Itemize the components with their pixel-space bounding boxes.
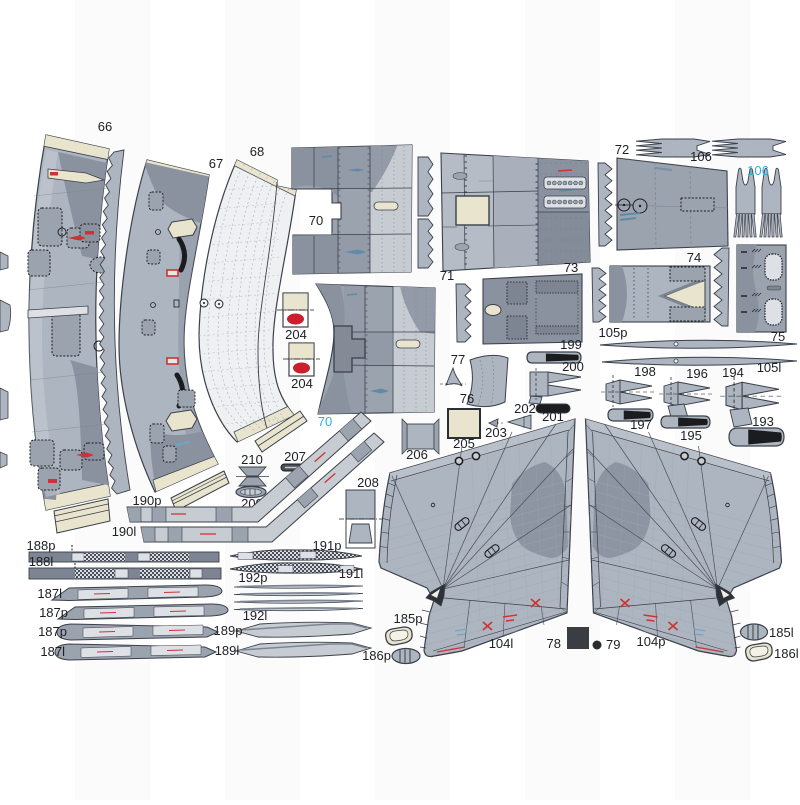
svg-text:191l: 191l — [339, 566, 364, 581]
svg-text:187l: 187l — [40, 644, 65, 659]
svg-text:77: 77 — [451, 352, 465, 367]
svg-text:199: 199 — [560, 337, 582, 352]
svg-text:201: 201 — [542, 409, 564, 424]
svg-text:67: 67 — [209, 156, 223, 171]
svg-text:71: 71 — [440, 268, 454, 283]
svg-text:204: 204 — [285, 327, 307, 342]
svg-text:196: 196 — [686, 366, 708, 381]
svg-text:188p: 188p — [27, 538, 56, 553]
svg-text:193: 193 — [752, 414, 774, 429]
svg-text:105l: 105l — [757, 360, 782, 375]
svg-text:72: 72 — [615, 142, 629, 157]
svg-text:194: 194 — [722, 365, 744, 380]
svg-text:78: 78 — [547, 636, 561, 651]
svg-text:74: 74 — [687, 250, 701, 265]
svg-text:190p: 190p — [133, 493, 162, 508]
svg-text:187p: 187p — [39, 605, 68, 620]
svg-text:202: 202 — [514, 401, 536, 416]
svg-text:207: 207 — [284, 449, 306, 464]
svg-text:210: 210 — [241, 452, 263, 467]
svg-text:206: 206 — [406, 447, 428, 462]
svg-text:189p: 189p — [214, 623, 243, 638]
svg-text:208: 208 — [357, 475, 379, 490]
svg-text:79: 79 — [606, 637, 620, 652]
svg-text:192l: 192l — [243, 608, 268, 623]
svg-text:204: 204 — [291, 376, 313, 391]
svg-text:189l: 189l — [215, 643, 240, 658]
svg-text:76: 76 — [460, 391, 474, 406]
svg-text:185p: 185p — [394, 611, 423, 626]
svg-text:104p: 104p — [637, 634, 666, 649]
svg-text:190l: 190l — [112, 524, 137, 539]
svg-text:68: 68 — [250, 144, 264, 159]
svg-text:75: 75 — [771, 329, 785, 344]
svg-text:106: 106 — [690, 149, 712, 164]
svg-text:73: 73 — [564, 260, 578, 275]
svg-text:105p: 105p — [599, 325, 628, 340]
svg-text:185l: 185l — [769, 625, 794, 640]
svg-text:104l: 104l — [489, 636, 514, 651]
svg-text:187l: 187l — [37, 586, 62, 601]
svg-text:191p: 191p — [313, 538, 342, 553]
svg-text:186l: 186l — [774, 646, 799, 661]
svg-text:70: 70 — [318, 414, 332, 429]
svg-text:106: 106 — [747, 163, 769, 178]
svg-text:188l: 188l — [29, 554, 54, 569]
svg-text:195: 195 — [680, 428, 702, 443]
svg-text:70: 70 — [309, 213, 323, 228]
svg-text:186p: 186p — [362, 648, 391, 663]
svg-text:192p: 192p — [239, 570, 268, 585]
svg-text:187p: 187p — [38, 624, 67, 639]
svg-text:200: 200 — [562, 359, 584, 374]
svg-text:66: 66 — [98, 119, 112, 134]
svg-text:203: 203 — [485, 425, 507, 440]
svg-text:198: 198 — [634, 364, 656, 379]
svg-text:197: 197 — [630, 417, 652, 432]
